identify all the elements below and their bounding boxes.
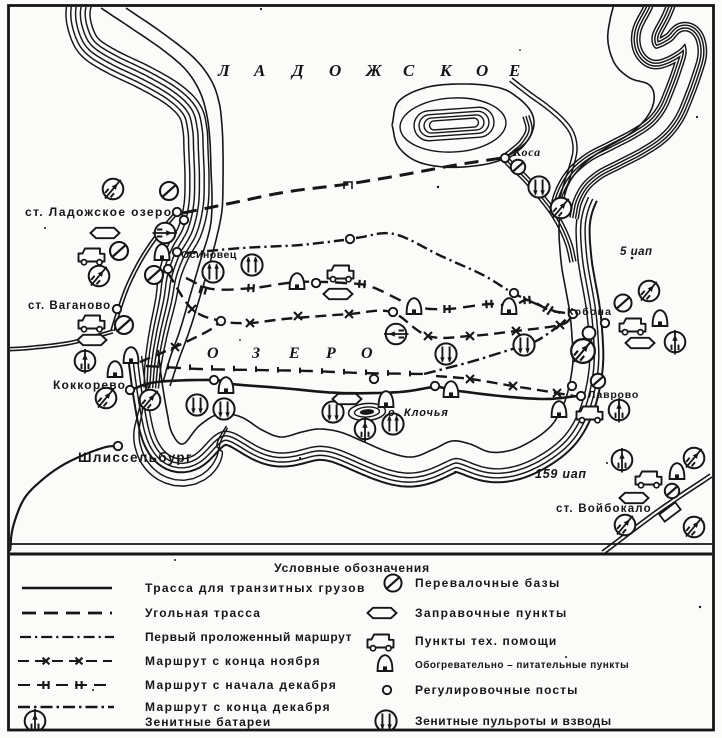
- svg-text:о. Клочья: о. Клочья: [388, 407, 449, 419]
- svg-text:Пункты тех. помощи: Пункты тех. помощи: [415, 634, 557, 648]
- svg-text:Кобона: Кобона: [567, 306, 612, 318]
- svg-text:Маршрут с начала декабря: Маршрут с начала декабря: [145, 678, 337, 692]
- svg-text:С: С: [403, 61, 415, 80]
- svg-text:К: К: [439, 61, 453, 80]
- svg-text:Условные обозначения: Условные обозначения: [274, 561, 430, 575]
- svg-text:ст. Ваганово: ст. Ваганово: [28, 300, 111, 312]
- svg-text:Регулировочные посты: Регулировочные посты: [415, 683, 579, 697]
- svg-text:Шлиссельбург: Шлиссельбург: [78, 450, 193, 465]
- svg-text:Обогревательно – питательные п: Обогревательно – питательные пункты: [415, 659, 629, 671]
- svg-text:Маршрут с конца ноября: Маршрут с конца ноября: [145, 654, 321, 668]
- svg-text:О: О: [476, 61, 488, 80]
- svg-text:Перевалочные базы: Перевалочные базы: [415, 576, 561, 590]
- svg-text:О: О: [207, 345, 219, 362]
- svg-text:Ж: Ж: [365, 61, 383, 80]
- svg-text:З: З: [251, 345, 260, 362]
- svg-text:Зенитные пульроты и взводы: Зенитные пульроты и взводы: [415, 714, 612, 728]
- svg-text:Р: Р: [325, 345, 336, 362]
- svg-text:Коккорево: Коккорево: [53, 378, 126, 392]
- svg-text:Угольная трасса: Угольная трасса: [145, 606, 261, 620]
- svg-text:Зенитные батареи: Зенитные батареи: [145, 715, 271, 729]
- svg-text:Е: Е: [508, 61, 520, 80]
- svg-text:Коса: Коса: [512, 145, 541, 159]
- svg-text:Первый проложенный маршрут: Первый проложенный маршрут: [145, 630, 352, 644]
- svg-text:Заправочные пункты: Заправочные пункты: [415, 606, 568, 620]
- svg-text:159 иап: 159 иап: [535, 467, 587, 481]
- svg-text:Е: Е: [288, 345, 300, 362]
- svg-text:Осиновец: Осиновец: [181, 249, 237, 261]
- svg-text:Трасса для транзитных грузов: Трасса для транзитных грузов: [145, 581, 366, 595]
- svg-text:А: А: [253, 61, 265, 80]
- svg-text:О: О: [361, 345, 373, 362]
- svg-text:ст. Ладожское озеро: ст. Ладожское озеро: [25, 205, 172, 219]
- svg-text:Лаврово: Лаврово: [588, 389, 639, 401]
- svg-text:5 иап: 5 иап: [620, 246, 653, 258]
- svg-text:ст. Войбокало: ст. Войбокало: [556, 503, 652, 515]
- svg-text:Маршрут с конца декабря: Маршрут с конца декабря: [145, 700, 331, 714]
- svg-text:Д: Д: [290, 61, 305, 80]
- svg-text:О: О: [329, 61, 341, 80]
- svg-text:Л: Л: [217, 61, 231, 80]
